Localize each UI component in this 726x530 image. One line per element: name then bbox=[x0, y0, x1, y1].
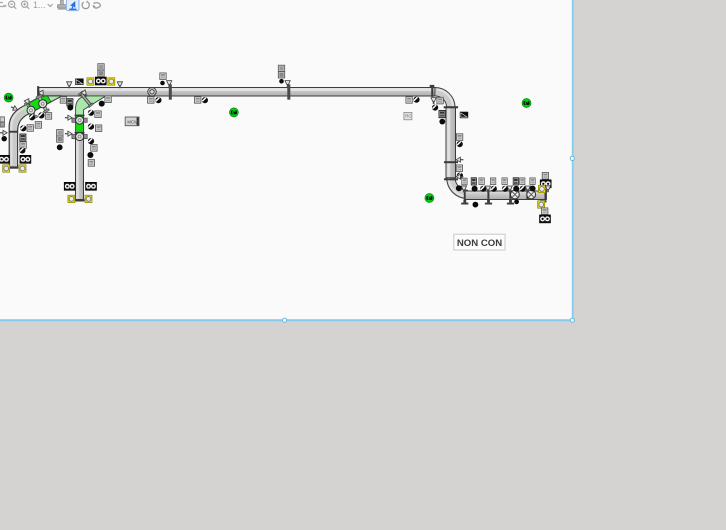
svg-text:1...: 1... bbox=[33, 0, 46, 10]
svg-text:MCM: MCM bbox=[127, 119, 138, 124]
svg-text:RC: RC bbox=[405, 114, 411, 119]
svg-text:NON CON: NON CON bbox=[457, 238, 502, 249]
